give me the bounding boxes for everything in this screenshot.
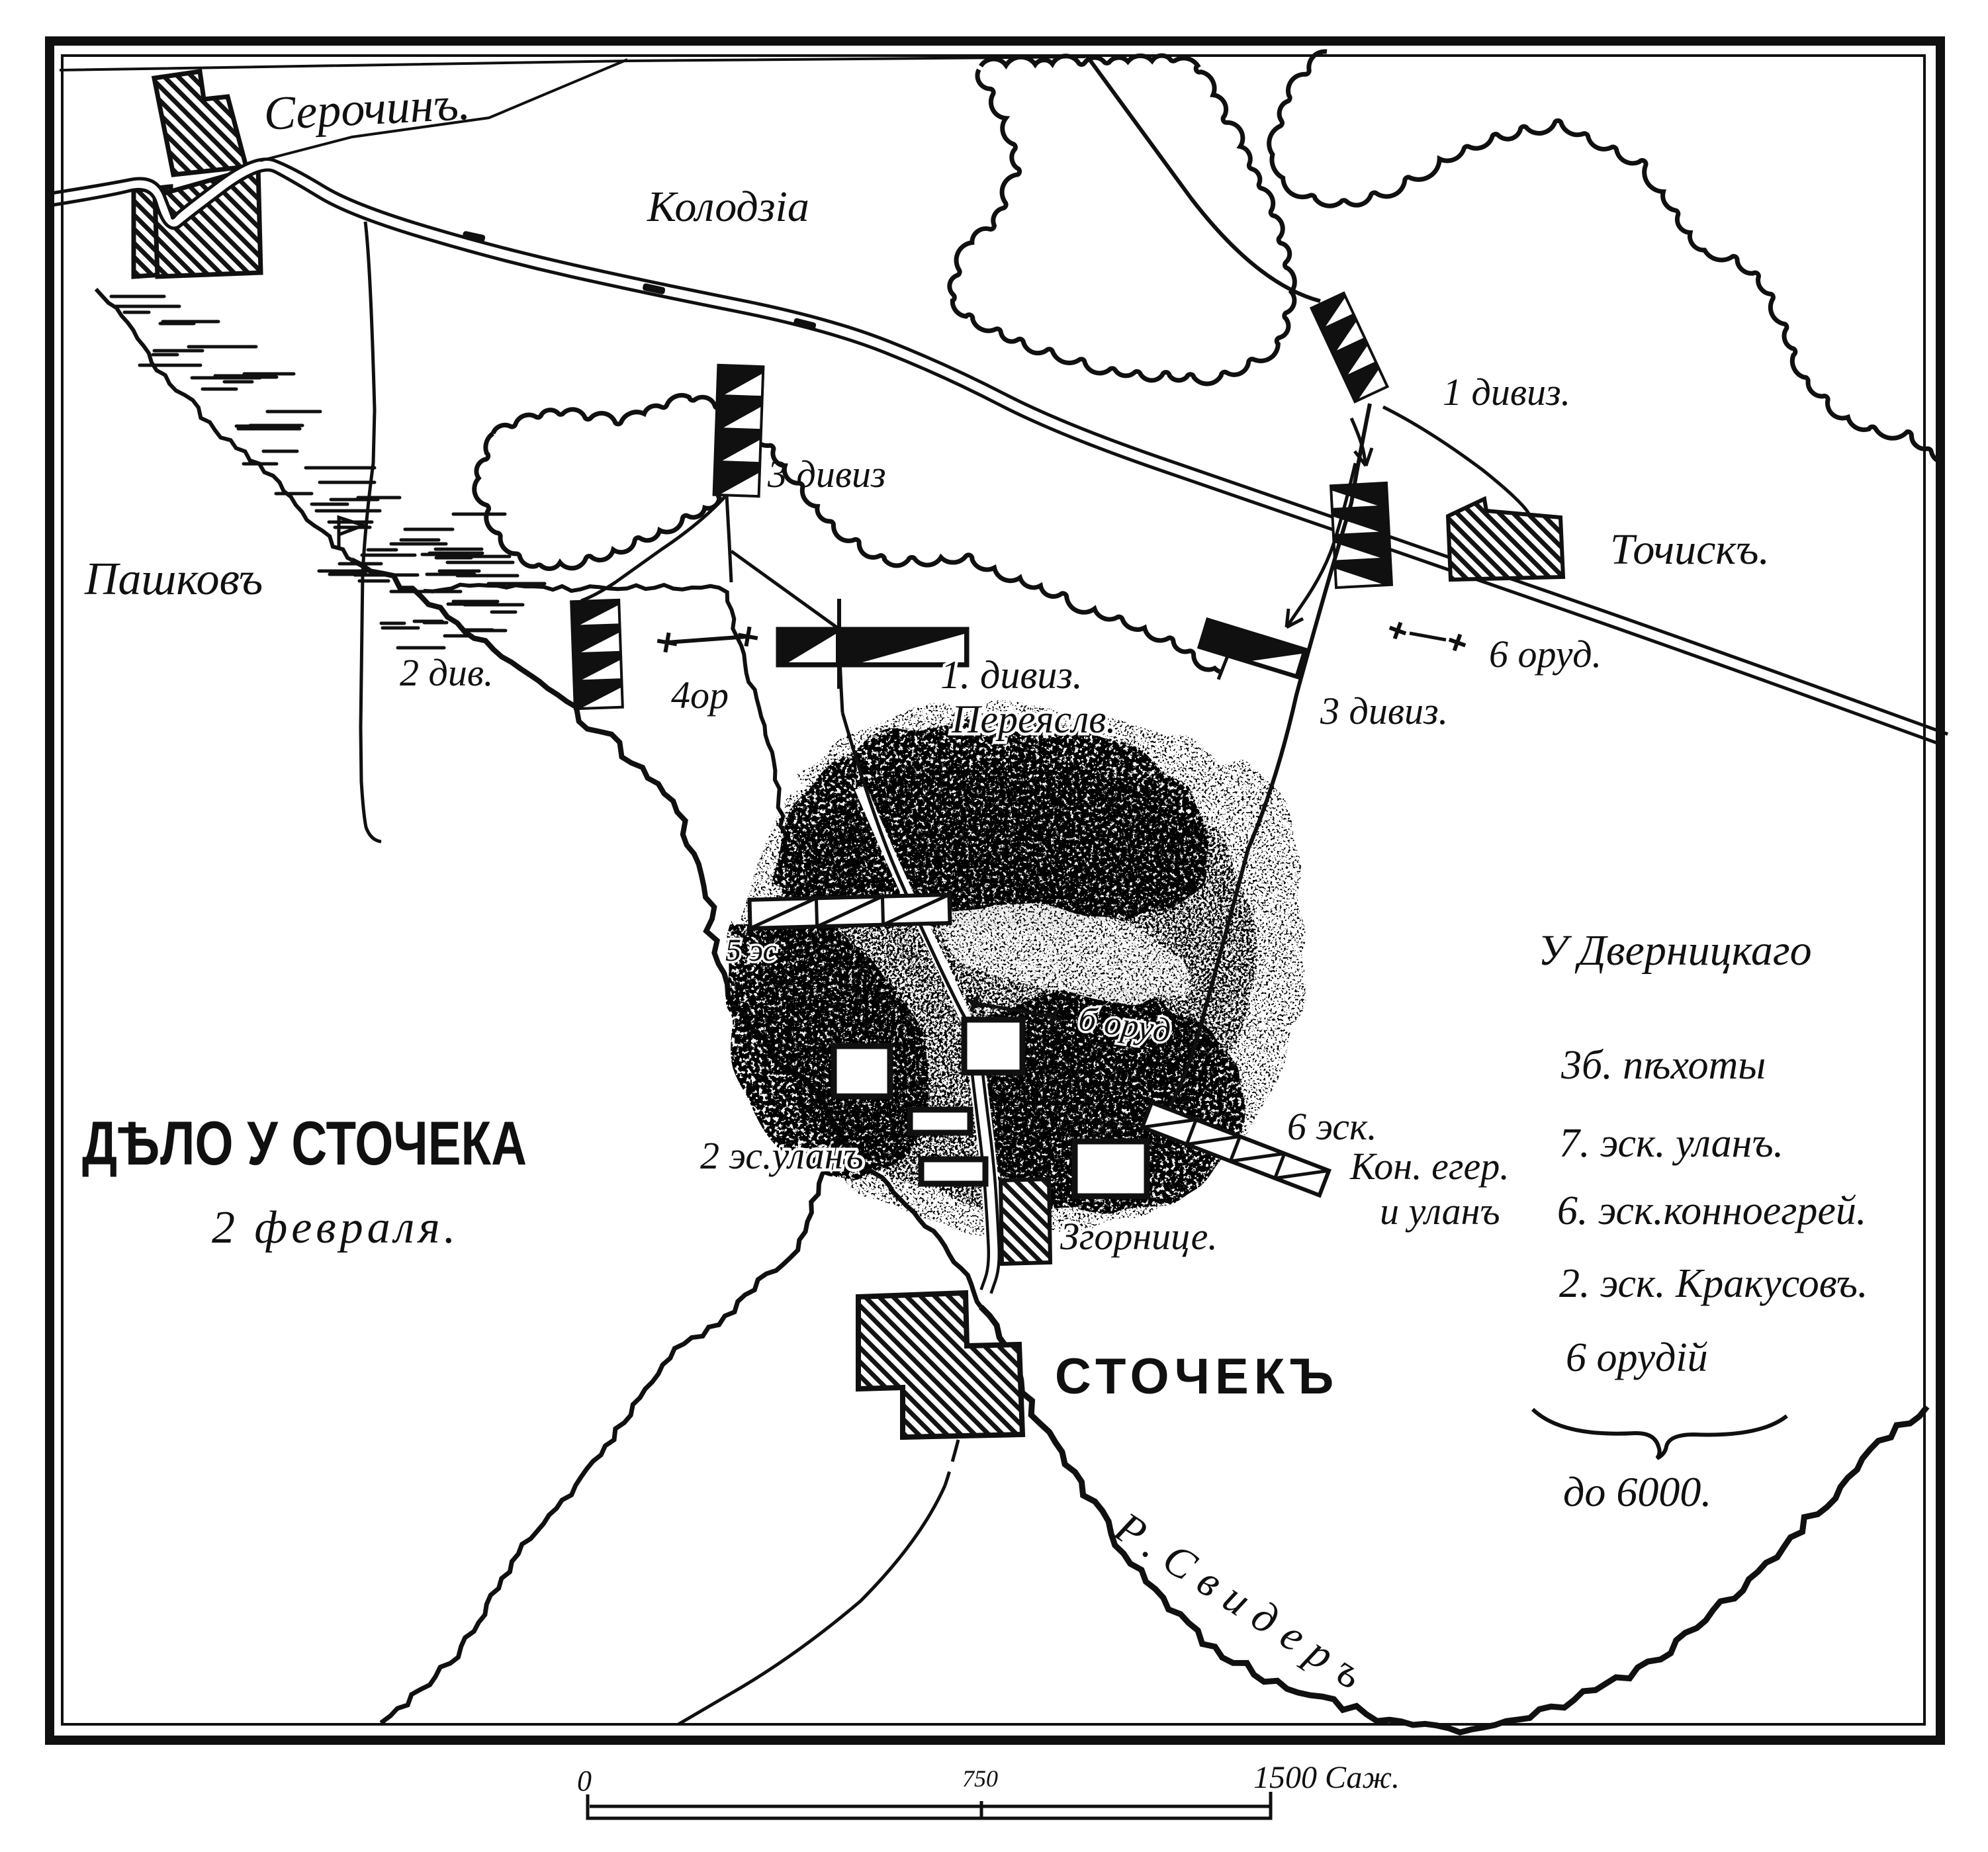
svg-text:5 эс: 5 эс — [725, 933, 777, 968]
svg-text:0: 0 — [577, 1765, 592, 1797]
svg-text:Переяслв.: Переяслв. — [951, 697, 1116, 741]
svg-text:1. дивиз.: 1. дивиз. — [940, 653, 1083, 697]
svg-text:6 оруд.: 6 оруд. — [1489, 633, 1602, 676]
svg-text:2 эс.уланъ: 2 эс.уланъ — [700, 1134, 864, 1177]
svg-text:7. эск. уланъ.: 7. эск. уланъ. — [1559, 1121, 1784, 1166]
svg-text:до 6000.: до 6000. — [1563, 1468, 1711, 1515]
svg-text:Точискъ.: Точискъ. — [1610, 525, 1770, 574]
svg-text:3 дивиз.: 3 дивиз. — [1320, 689, 1448, 732]
svg-text:Кон. егер.: Кон. егер. — [1349, 1145, 1510, 1188]
svg-text:Пашковъ: Пашковъ — [84, 554, 263, 605]
svg-text:Згорнице.: Згорнице. — [1060, 1215, 1218, 1258]
svg-text:и уланъ: и уланъ — [1380, 1190, 1500, 1233]
svg-text:1 дивиз.: 1 дивиз. — [1443, 371, 1570, 414]
svg-text:У Дверницкаго: У Дверницкаго — [1538, 926, 1812, 975]
svg-text:Серочинъ.: Серочинъ. — [263, 77, 472, 140]
svg-text:6 орудій: 6 орудій — [1566, 1335, 1708, 1380]
svg-text:750: 750 — [962, 1765, 998, 1792]
svg-text:1500 Саж.: 1500 Саж. — [1253, 1760, 1400, 1795]
svg-text:3б. пѣхоты: 3б. пѣхоты — [1560, 1043, 1766, 1088]
svg-text:3 дивиз: 3 дивиз — [767, 453, 886, 496]
svg-text:6 эск.: 6 эск. — [1287, 1105, 1377, 1148]
svg-text:ДѢЛО У СТОЧЕКА: ДѢЛО У СТОЧЕКА — [82, 1108, 527, 1178]
svg-text:6. эск.конноегрей.: 6. эск.конноегрей. — [1557, 1188, 1866, 1233]
svg-text:2 февраля.: 2 февраля. — [212, 1202, 459, 1253]
svg-text:4ор: 4ор — [671, 674, 729, 717]
svg-text:Колодзіа: Колодзіа — [647, 183, 809, 231]
svg-text:2. эск. Кракусовъ.: 2. эск. Кракусовъ. — [1559, 1261, 1868, 1306]
svg-text:СТОЧЕКЪ: СТОЧЕКЪ — [1055, 1348, 1339, 1405]
svg-text:2 див.: 2 див. — [400, 651, 494, 694]
